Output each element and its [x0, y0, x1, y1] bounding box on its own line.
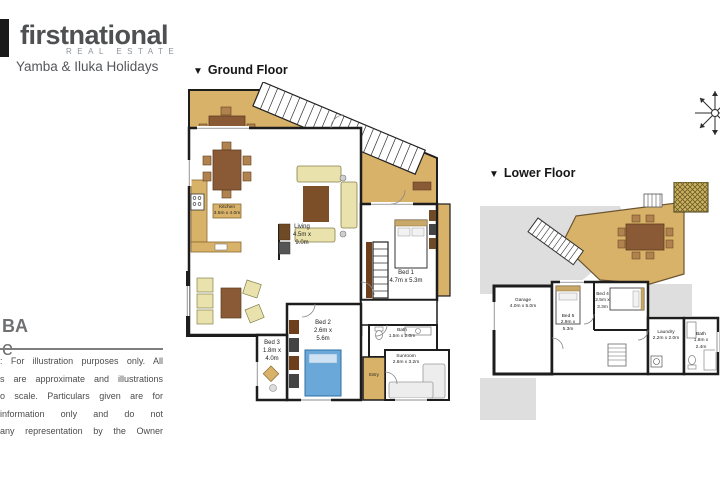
bed4-furniture: [610, 288, 644, 310]
disclaimer-line: s are approximate and illustrations: [0, 371, 163, 389]
room-label-bed5: Bed 5 2.9m x 5.3m: [556, 314, 580, 333]
room-label-living: Living 4.5m x 9.0m: [287, 224, 317, 247]
ground-floor-plan: Living 4.5m x 9.0m Kitchen 3.5m x 4.0m B…: [183, 82, 463, 402]
disclaimer-line: : For illustration purposes only. All: [0, 353, 163, 371]
lower-floor-title: ▼Lower Floor: [489, 166, 575, 180]
room-label-bed2: Bed 2 2.6m x 5.6m: [307, 320, 339, 343]
room-label-laundry: Laundry 2.2m x 2.0m: [650, 330, 682, 343]
logo-tagline: Yamba & Iluka Holidays: [16, 59, 158, 74]
logo-sub: REAL ESTATE: [66, 47, 179, 56]
property-name-cut: BA: [2, 316, 28, 337]
ground-floor-title: ▼Ground Floor: [193, 63, 288, 77]
room-label-garage: Garage 4.0m x 5.0m: [504, 298, 542, 311]
divider-rule: [0, 348, 163, 350]
room-label-sunroom: Sunroom 2.6m x 3.2m: [389, 354, 423, 367]
room-label-kitchen: Kitchen 3.5m x 4.0m: [211, 205, 243, 218]
hall-steps: [608, 344, 626, 366]
lower-floor-plan: Garage 4.0m x 5.0m Bed 4 2.5m x 3.3m Bed…: [480, 182, 720, 422]
hallway: [361, 300, 437, 325]
mini-steps: [644, 194, 662, 207]
side-paving: [648, 284, 692, 316]
room-label-bath-lower: Bath 1.8m x 2.4m: [688, 332, 714, 351]
room-label-bed1: Bed 1 4.7m x 5.3m: [389, 270, 423, 286]
crosshatch-stairs: [674, 182, 708, 212]
internal-stairs: [366, 242, 388, 298]
logo-bar: [0, 19, 9, 57]
room-label-bed3: Bed 3 1.8m x 4.0m: [259, 340, 285, 363]
section-marker-icon: ▼: [193, 66, 203, 77]
floorplan-page: firstnational REAL ESTATE Yamba & Iluka …: [0, 0, 720, 480]
compass-rose-icon: [692, 86, 720, 142]
disclaimer-line: any representation by the Owner: [0, 423, 163, 441]
room-label-bath-ground: Bath 1.5m x 2.0m: [373, 328, 431, 341]
lower-paving: [480, 378, 536, 420]
laundry-fixtures: [651, 356, 662, 367]
disclaimer: : For illustration purposes only. All s …: [0, 353, 163, 441]
entry-area: [363, 357, 385, 400]
room-label-bed4: Bed 4 2.5m x 3.3m: [594, 292, 611, 311]
disclaimer-line: information only and do not: [0, 406, 163, 424]
side-balcony: [437, 204, 450, 296]
section-marker-icon: ▼: [489, 169, 499, 180]
disclaimer-line: o scale. Particulars given are for: [0, 388, 163, 406]
deck-bench: [413, 182, 431, 190]
room-label-entry: Entry: [363, 372, 385, 377]
